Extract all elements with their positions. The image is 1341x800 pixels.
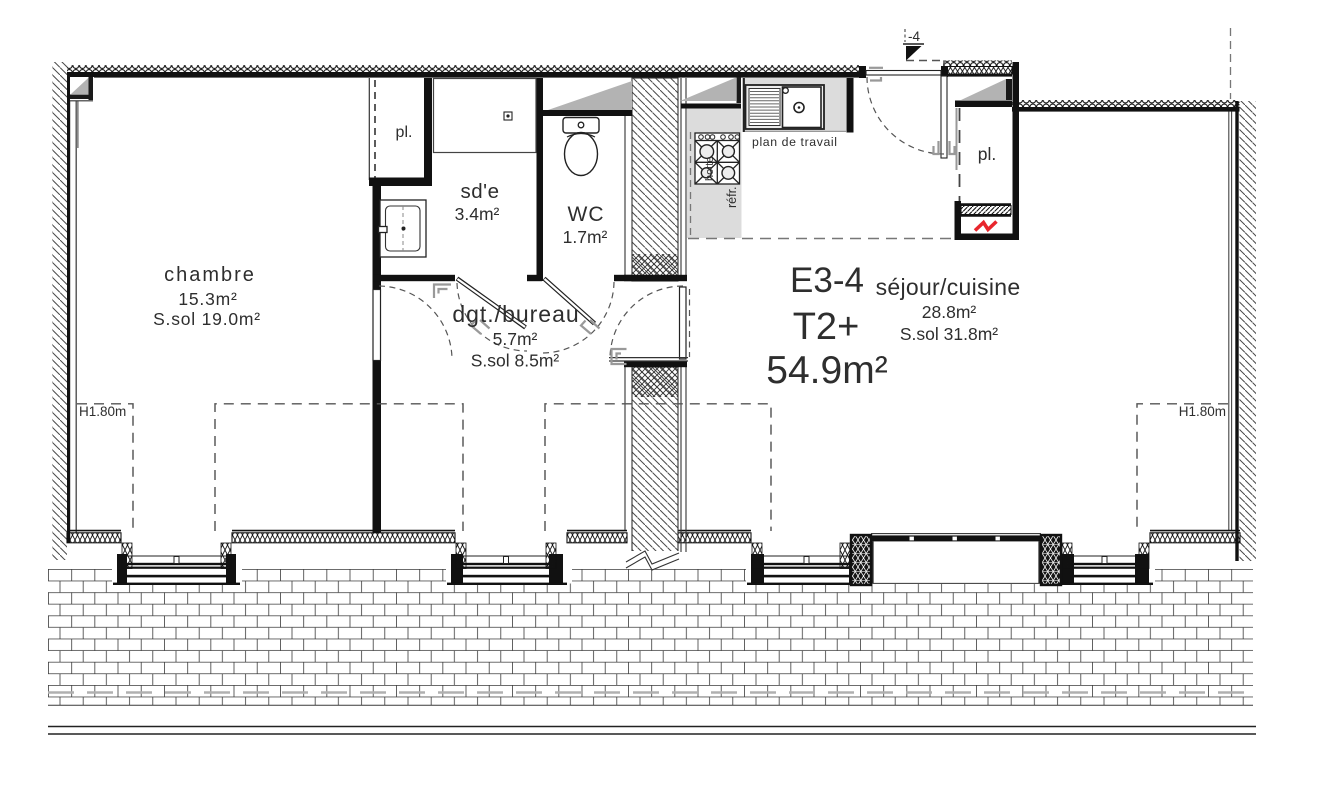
svg-text:-4: -4 [908,29,920,44]
svg-text:3.4m²: 3.4m² [455,204,500,224]
svg-text:S.sol 8.5m²: S.sol 8.5m² [471,351,560,371]
svg-text:54.9m²: 54.9m² [766,349,887,392]
svg-text:S.sol 31.8m²: S.sol 31.8m² [900,324,998,344]
svg-text:H1.80m: H1.80m [1179,404,1226,419]
svg-text:1.7m²: 1.7m² [563,227,608,247]
svg-text:dgt./bureau: dgt./bureau [452,301,579,327]
svg-text:S.sol 19.0m²: S.sol 19.0m² [153,309,261,329]
svg-text:28.8m²: 28.8m² [922,302,977,322]
svg-text:5.7m²: 5.7m² [493,329,538,349]
svg-text:réfr.: réfr. [725,186,739,208]
svg-text:séjour/cuisine: séjour/cuisine [876,274,1021,300]
svg-text:WC: WC [568,203,605,226]
svg-text:E3-4: E3-4 [790,261,864,300]
svg-text:T2+: T2+ [793,306,860,348]
svg-text:15.3m²: 15.3m² [178,289,237,309]
svg-text:sd'e: sd'e [461,180,500,203]
svg-text:H1.80m: H1.80m [79,404,126,419]
svg-text:plan de travail: plan de travail [752,135,838,149]
svg-text:hotte: hotte [704,157,716,181]
svg-text:pl.: pl. [396,124,413,141]
svg-text:pl.: pl. [978,144,996,164]
svg-text:chambre: chambre [164,264,256,286]
